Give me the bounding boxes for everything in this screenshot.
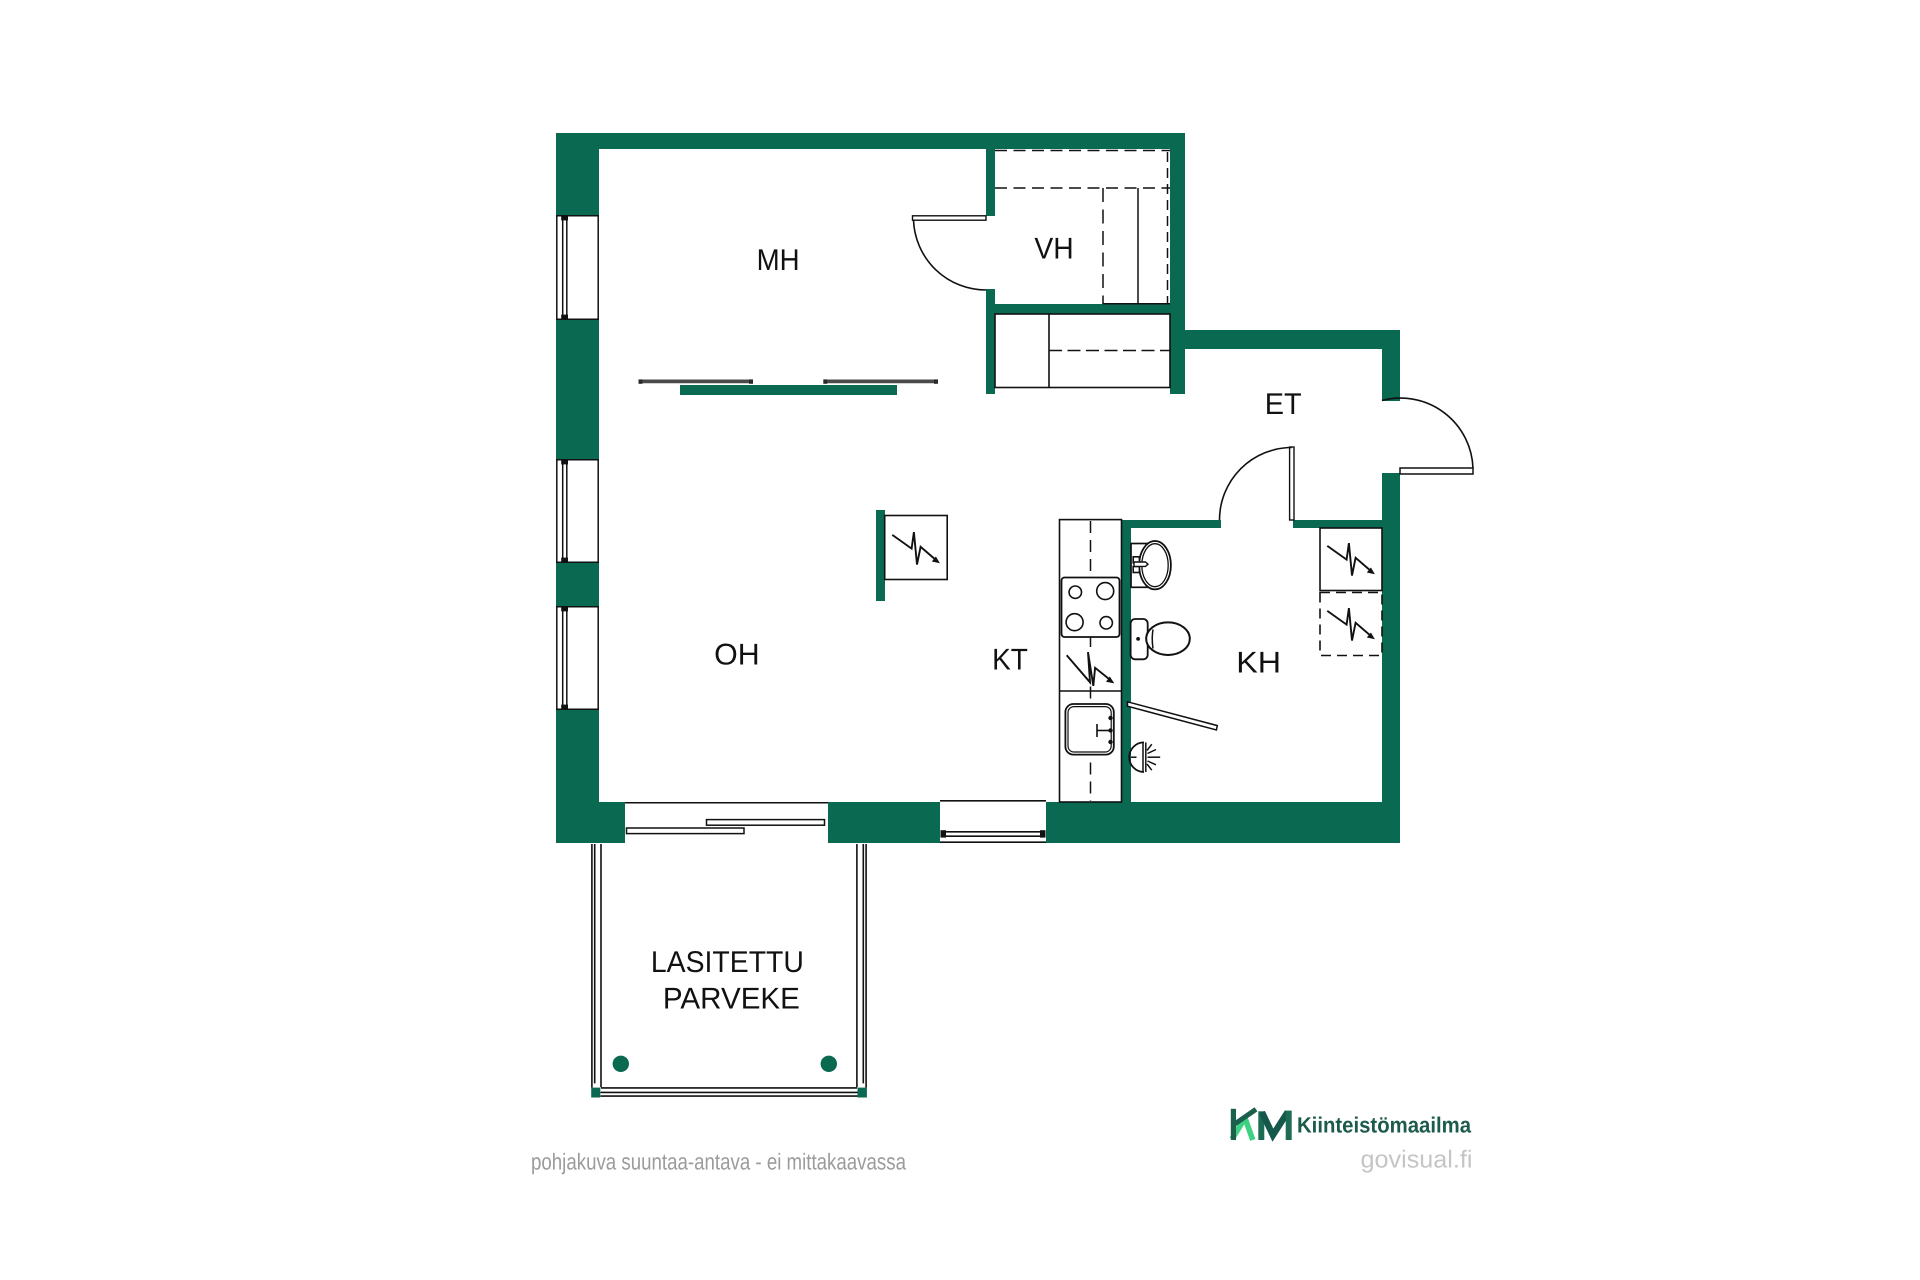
svg-text:pohjakuva suuntaa-antava - ei: pohjakuva suuntaa-antava - ei mittakaava… bbox=[531, 1149, 906, 1175]
svg-text:MH: MH bbox=[757, 244, 800, 277]
svg-text:govisual.fi: govisual.fi bbox=[1361, 1147, 1473, 1174]
svg-text:KT: KT bbox=[992, 644, 1028, 677]
svg-text:Kiinteistömaailma: Kiinteistömaailma bbox=[1297, 1113, 1472, 1138]
svg-text:OH: OH bbox=[714, 639, 760, 672]
svg-text:VH: VH bbox=[1034, 233, 1073, 266]
svg-text:LASITETTU: LASITETTU bbox=[651, 946, 804, 979]
svg-text:ET: ET bbox=[1265, 388, 1302, 421]
svg-text:KH: KH bbox=[1236, 647, 1281, 680]
svg-text:PARVEKE: PARVEKE bbox=[663, 983, 800, 1016]
